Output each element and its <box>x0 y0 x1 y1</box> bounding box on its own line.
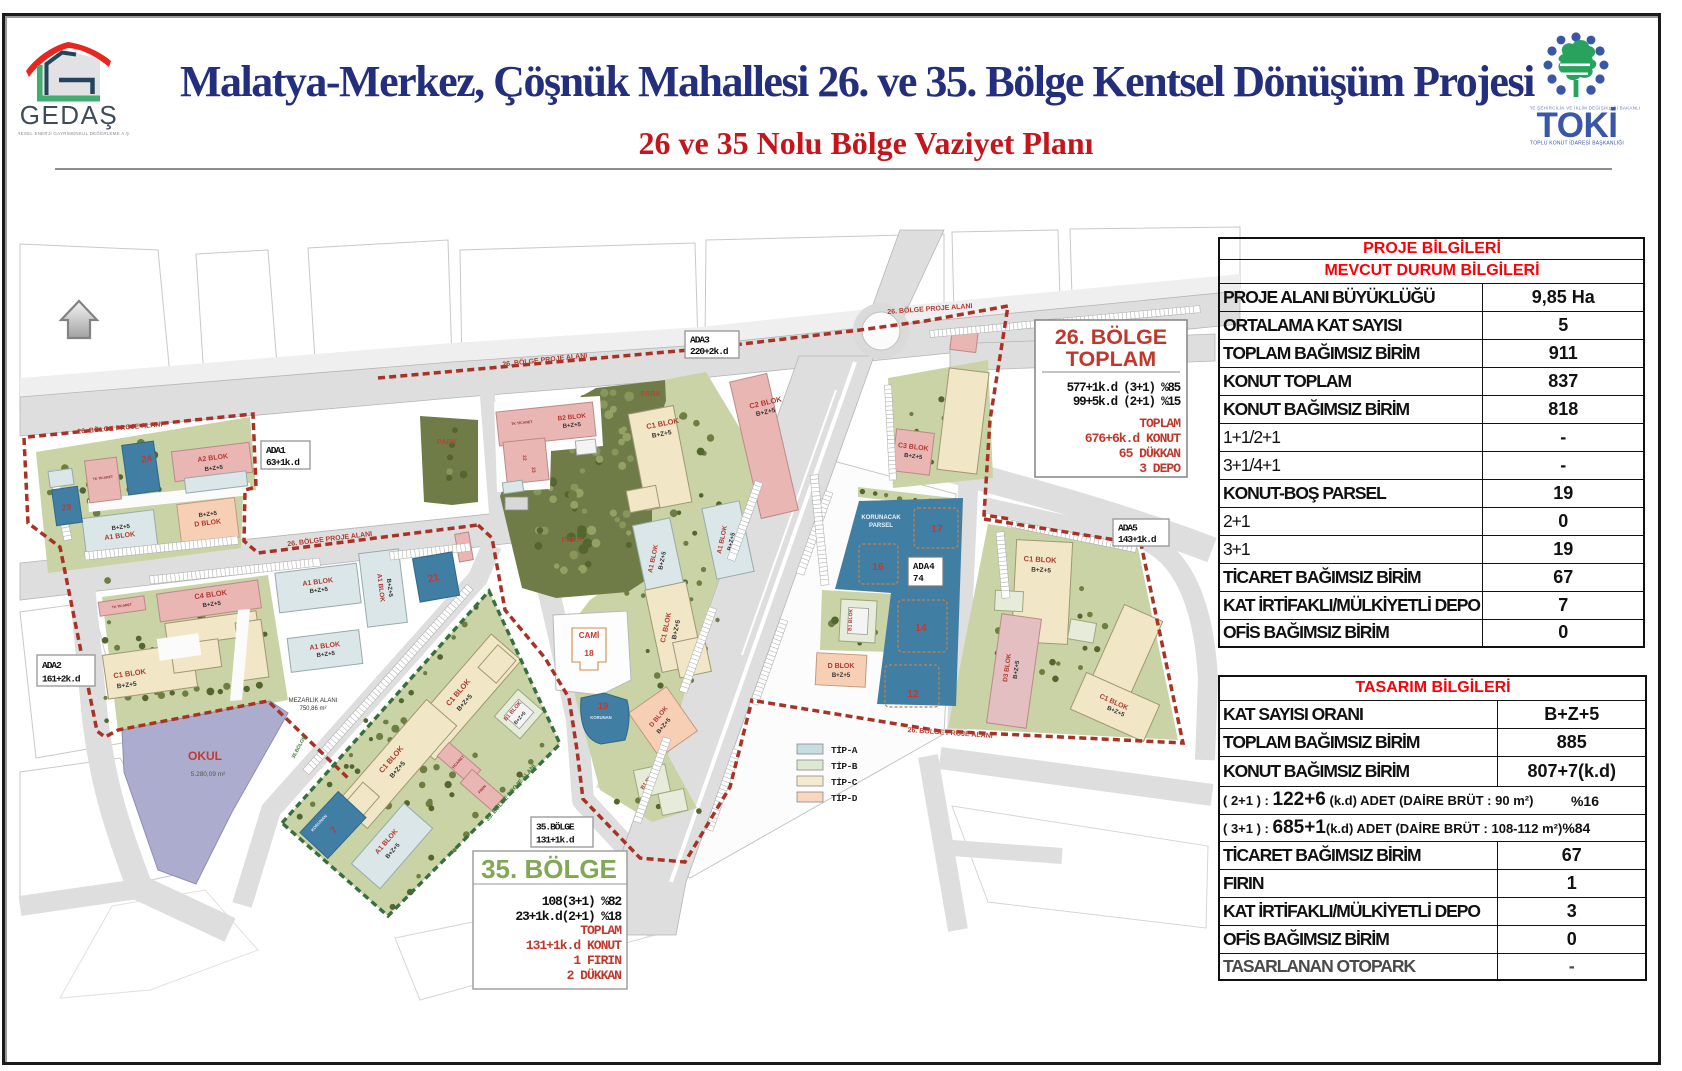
svg-text:18: 18 <box>584 648 594 658</box>
svg-text:TİP-B: TİP-B <box>831 761 858 772</box>
svg-text:3 DEPO: 3 DEPO <box>1139 461 1181 476</box>
svg-text:ADA4: ADA4 <box>913 562 935 572</box>
svg-text:14: 14 <box>915 622 927 634</box>
svg-text:PARK: PARK <box>641 389 662 398</box>
svg-text:23: 23 <box>530 467 537 473</box>
svg-text:35.BÖLGE: 35.BÖLGE <box>536 822 575 833</box>
svg-text:161+2k.d: 161+2k.d <box>42 673 81 684</box>
svg-text:PARK: PARK <box>562 535 583 544</box>
svg-text:26. BÖLGE: 26. BÖLGE <box>1055 324 1167 349</box>
svg-text:B+Z+5: B+Z+5 <box>832 673 851 679</box>
svg-text:23+1k.d(2+1) %18: 23+1k.d(2+1) %18 <box>515 909 622 924</box>
svg-text:12: 12 <box>907 688 919 700</box>
svg-text:ADA2: ADA2 <box>42 660 62 671</box>
svg-text:1 FIRIN: 1 FIRIN <box>573 953 621 968</box>
svg-text:35.BÖLGE: 35.BÖLGE <box>290 734 308 760</box>
svg-text:KORUNACAK: KORUNACAK <box>861 515 901 521</box>
svg-text:TOPLAM: TOPLAM <box>1066 347 1156 371</box>
svg-text:2 DÜKKAN: 2 DÜKKAN <box>567 967 622 983</box>
svg-text:63+1k.d: 63+1k.d <box>266 457 300 468</box>
svg-text:750,86 m²: 750,86 m² <box>299 706 326 712</box>
svg-text:577+1k.d (3+1) %85: 577+1k.d (3+1) %85 <box>1067 381 1181 395</box>
svg-text:TOPLAM: TOPLAM <box>1139 416 1181 431</box>
svg-text:PARSEL: PARSEL <box>869 523 893 529</box>
svg-text:65 DÜKKAN: 65 DÜKKAN <box>1119 445 1180 461</box>
svg-text:19: 19 <box>598 701 609 712</box>
svg-text:KORUNAN: KORUNAN <box>590 715 611 720</box>
svg-text:220+2k.d: 220+2k.d <box>690 346 729 357</box>
svg-text:5.280,09 m²: 5.280,09 m² <box>191 771 227 778</box>
svg-text:D BLOK: D BLOK <box>828 663 855 670</box>
svg-text:B1 BLOK: B1 BLOK <box>847 608 854 631</box>
svg-text:17: 17 <box>931 523 943 535</box>
svg-text:99+5k.d (2+1) %15: 99+5k.d (2+1) %15 <box>1073 395 1181 409</box>
svg-text:35. BÖLGE: 35. BÖLGE <box>481 854 617 884</box>
svg-text:ÇEVRESEL ENERJİ GAYRİMENKUL DE: ÇEVRESEL ENERJİ GAYRİMENKUL DEĞERLEME A.… <box>18 131 130 136</box>
svg-text:22: 22 <box>521 455 528 461</box>
svg-text:16: 16 <box>872 561 884 573</box>
svg-text:74: 74 <box>913 574 924 584</box>
svg-text:ADA5: ADA5 <box>1118 522 1138 533</box>
svg-text:676+6k.d KONUT: 676+6k.d KONUT <box>1085 431 1181 446</box>
svg-text:ADA3: ADA3 <box>690 334 710 345</box>
svg-text:108(3+1) %82: 108(3+1) %82 <box>542 894 623 909</box>
svg-text:131+1k.d: 131+1k.d <box>536 835 575 846</box>
svg-text:131+1k.d KONUT: 131+1k.d KONUT <box>526 938 622 953</box>
svg-text:TOPLU KONUT İDARESİ BAŞKANLIĞI: TOPLU KONUT İDARESİ BAŞKANLIĞI <box>1530 140 1624 147</box>
svg-text:OKUL: OKUL <box>188 749 222 763</box>
svg-text:TOKİ: TOKİ <box>1537 106 1618 145</box>
svg-text:MEZARLIK ALANI: MEZARLIK ALANI <box>289 698 338 704</box>
svg-text:TİP-C: TİP-C <box>831 777 858 788</box>
svg-text:B+Z+5: B+Z+5 <box>1031 566 1052 574</box>
svg-text:PARK: PARK <box>437 437 458 446</box>
svg-text:ADA1: ADA1 <box>266 445 286 456</box>
svg-text:TİP-D: TİP-D <box>831 793 858 804</box>
svg-text:CAMİ: CAMİ <box>579 631 599 640</box>
svg-text:C1 BLOK: C1 BLOK <box>1023 554 1057 565</box>
svg-text:29: 29 <box>61 501 72 512</box>
svg-text:GEDAŞ: GEDAŞ <box>20 100 119 130</box>
svg-text:TOPLAM: TOPLAM <box>580 923 622 938</box>
svg-text:143+1k.d: 143+1k.d <box>1118 534 1157 545</box>
svg-text:TİP-A: TİP-A <box>831 745 858 756</box>
